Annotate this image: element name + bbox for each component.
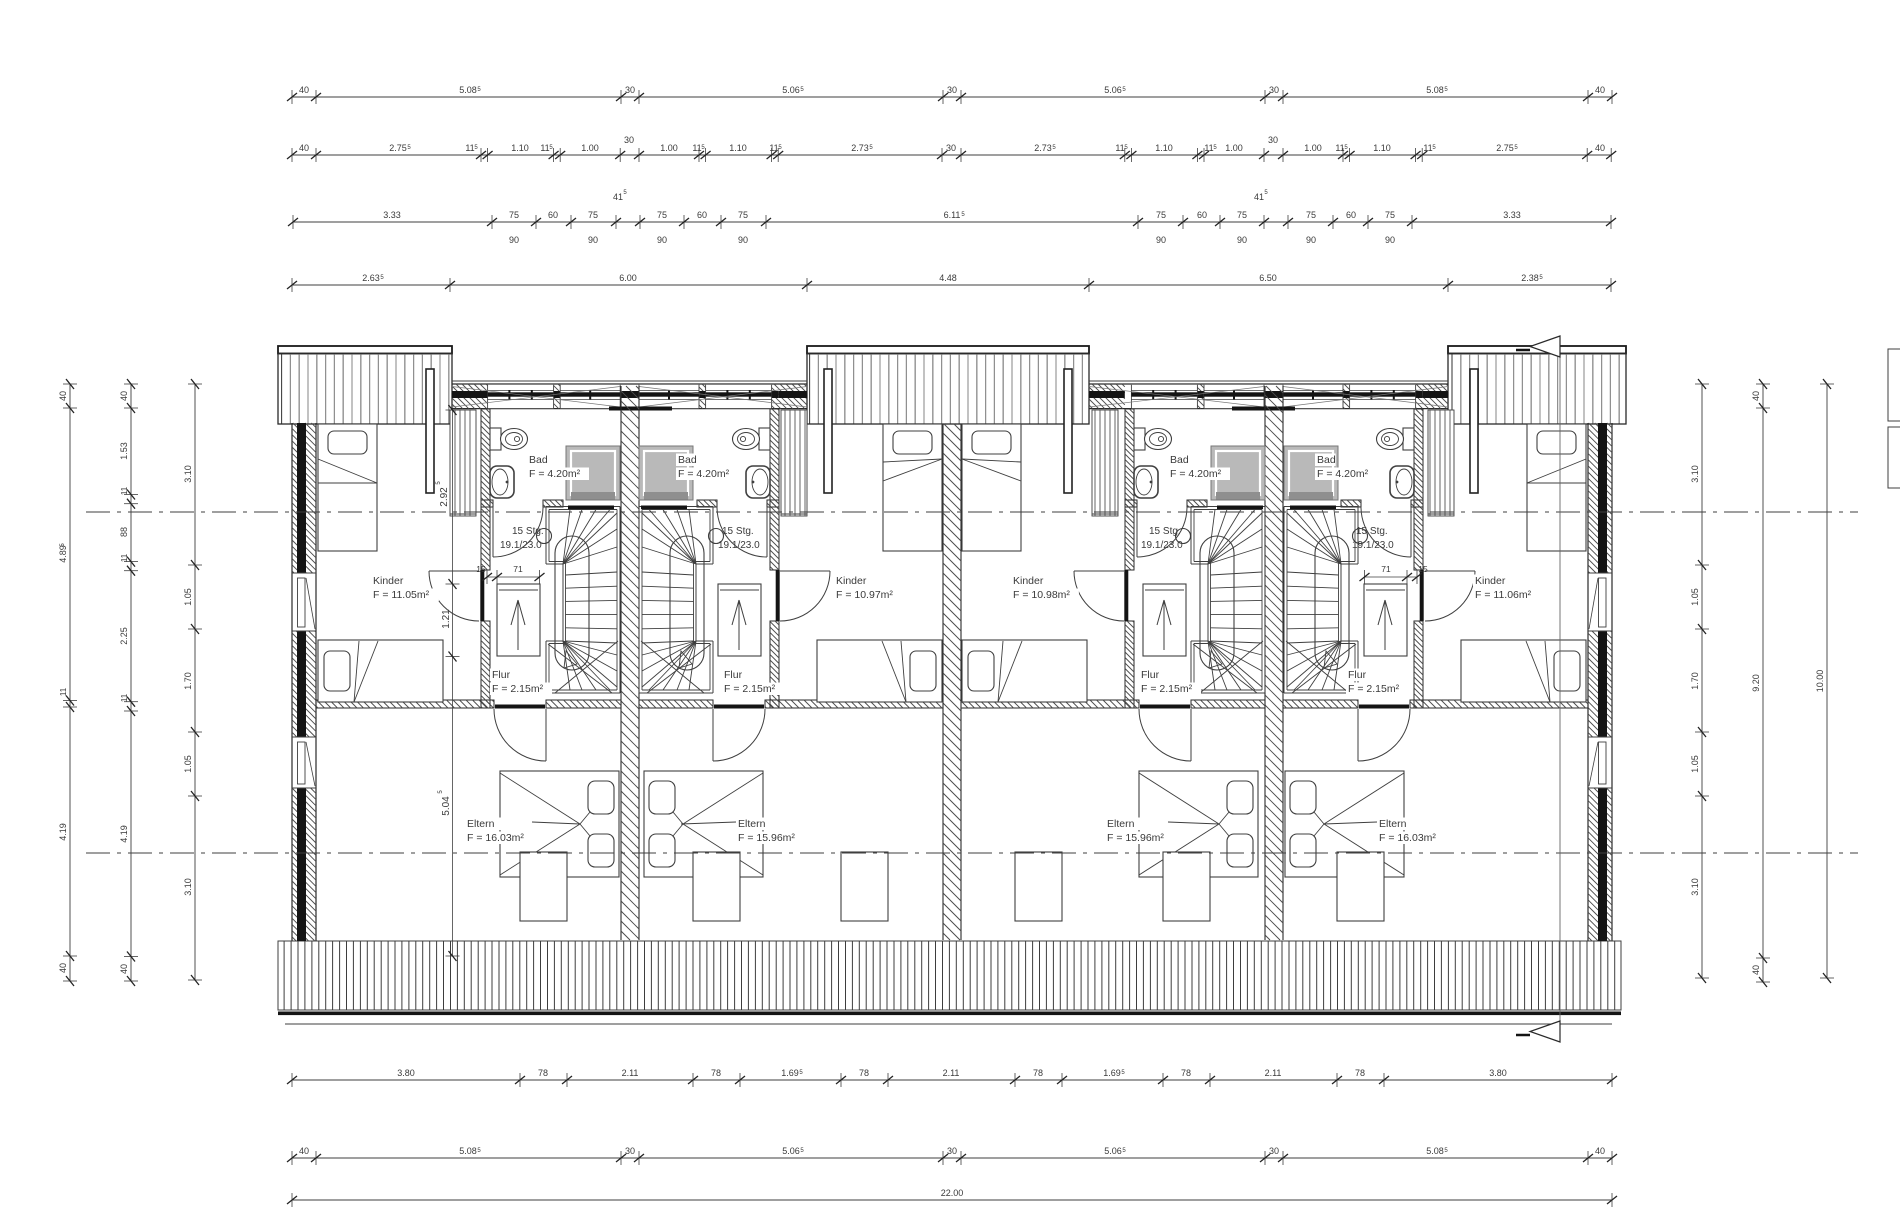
svg-text:11: 11 [465, 143, 474, 153]
svg-text:4.19: 4.19 [58, 823, 68, 841]
svg-text:4.89: 4.89 [58, 545, 68, 563]
svg-text:F = 4.20m²: F = 4.20m² [529, 468, 581, 480]
svg-text:1.70: 1.70 [183, 672, 193, 690]
svg-text:Eltern: Eltern [738, 818, 766, 830]
svg-text:90: 90 [1306, 235, 1316, 245]
svg-text:F = 11.05m²: F = 11.05m² [373, 589, 430, 601]
svg-text:1.70: 1.70 [1690, 672, 1700, 690]
svg-text:F = 2.15m²: F = 2.15m² [1141, 683, 1193, 695]
svg-text:1.05: 1.05 [183, 755, 193, 773]
svg-text:6.11: 6.11 [944, 210, 961, 220]
svg-text:1.05: 1.05 [183, 588, 193, 606]
svg-text:F = 16.03m²: F = 16.03m² [1379, 832, 1436, 844]
svg-text:78: 78 [859, 1068, 869, 1078]
svg-text:19.1/23.0: 19.1/23.0 [1352, 540, 1394, 551]
svg-text:30: 30 [947, 85, 957, 95]
svg-text:Bad: Bad [678, 454, 697, 466]
svg-text:90: 90 [588, 235, 598, 245]
svg-text:F = 2.15m²: F = 2.15m² [1348, 683, 1400, 695]
svg-text:30: 30 [625, 85, 635, 95]
svg-text:30: 30 [1269, 85, 1279, 95]
svg-text:Flur: Flur [1141, 669, 1160, 681]
svg-text:1.00: 1.00 [581, 143, 599, 153]
svg-text:1.21: 1.21 [441, 609, 452, 629]
svg-text:78: 78 [1181, 1068, 1191, 1078]
svg-text:11: 11 [692, 143, 701, 153]
svg-text:5.08: 5.08 [459, 85, 477, 95]
svg-text:5.06: 5.06 [1104, 85, 1122, 95]
svg-text:2.92: 2.92 [439, 487, 450, 507]
svg-text:Kinder: Kinder [836, 575, 867, 587]
svg-text:40: 40 [1751, 965, 1761, 975]
svg-text:1.00: 1.00 [660, 143, 678, 153]
svg-text:40: 40 [58, 963, 68, 973]
svg-text:75: 75 [1385, 210, 1395, 220]
svg-text:3.33: 3.33 [1503, 210, 1521, 220]
svg-text:5.06: 5.06 [782, 1146, 800, 1156]
svg-text:60: 60 [548, 210, 558, 220]
svg-text:78: 78 [1355, 1068, 1365, 1078]
svg-text:F = 15.96m²: F = 15.96m² [1107, 832, 1164, 844]
svg-text:2.11: 2.11 [1265, 1068, 1282, 1078]
svg-text:2.11: 2.11 [622, 1068, 639, 1078]
svg-text:2.75: 2.75 [1496, 143, 1514, 153]
svg-text:10.00: 10.00 [1815, 670, 1825, 693]
svg-text:90: 90 [1156, 235, 1166, 245]
svg-text:15 Stg.: 15 Stg. [512, 526, 544, 537]
svg-text:1.10: 1.10 [1155, 143, 1173, 153]
svg-text:1.10: 1.10 [1373, 143, 1391, 153]
svg-text:15 Stg.: 15 Stg. [1356, 526, 1388, 537]
svg-text:40: 40 [299, 85, 309, 95]
svg-text:11: 11 [120, 553, 129, 562]
svg-text:2.75: 2.75 [389, 143, 407, 153]
svg-text:75: 75 [588, 210, 598, 220]
svg-text:Eltern: Eltern [467, 818, 495, 830]
svg-text:3.10: 3.10 [1690, 465, 1700, 483]
svg-text:Eltern: Eltern [1379, 818, 1407, 830]
svg-text:78: 78 [711, 1068, 721, 1078]
svg-text:60: 60 [1197, 210, 1207, 220]
svg-text:F = 2.15m²: F = 2.15m² [724, 683, 776, 695]
svg-text:5.04: 5.04 [441, 796, 452, 816]
svg-text:78: 78 [538, 1068, 548, 1078]
svg-text:11: 11 [1335, 143, 1344, 153]
svg-text:19.1/23.0: 19.1/23.0 [718, 540, 760, 551]
svg-text:78: 78 [1033, 1068, 1043, 1078]
svg-text:1.69: 1.69 [1103, 1068, 1121, 1078]
svg-text:3.10: 3.10 [1690, 878, 1700, 896]
svg-text:30: 30 [1268, 135, 1278, 145]
svg-text:2.63: 2.63 [362, 273, 380, 283]
svg-text:Kinder: Kinder [1475, 575, 1506, 587]
svg-text:4.48: 4.48 [939, 273, 957, 283]
svg-text:1.05: 1.05 [1690, 588, 1700, 606]
svg-text:Flur: Flur [1348, 669, 1367, 681]
svg-text:90: 90 [509, 235, 519, 245]
svg-text:40: 40 [299, 1146, 309, 1156]
svg-text:Kinder: Kinder [373, 575, 404, 587]
svg-text:40: 40 [119, 964, 129, 974]
svg-text:11: 11 [1204, 143, 1213, 153]
svg-text:75: 75 [1306, 210, 1316, 220]
svg-text:90: 90 [738, 235, 748, 245]
svg-text:40: 40 [1595, 1146, 1605, 1156]
svg-text:3.80: 3.80 [1489, 1068, 1507, 1078]
svg-text:Bad: Bad [1170, 454, 1189, 466]
svg-text:15: 15 [476, 564, 486, 574]
svg-text:40: 40 [1751, 391, 1761, 401]
svg-text:Bad: Bad [529, 454, 548, 466]
svg-text:F = 2.15m²: F = 2.15m² [492, 683, 544, 695]
svg-text:5.08: 5.08 [1426, 85, 1444, 95]
svg-text:40: 40 [1595, 143, 1605, 153]
svg-text:11: 11 [1115, 143, 1124, 153]
svg-text:F = 10.98m²: F = 10.98m² [1013, 589, 1070, 601]
svg-text:30: 30 [624, 135, 634, 145]
svg-text:Kinder: Kinder [1013, 575, 1044, 587]
svg-text:75: 75 [657, 210, 667, 220]
svg-text:11: 11 [1423, 143, 1432, 153]
svg-text:1.05: 1.05 [1690, 755, 1700, 773]
svg-text:11: 11 [120, 486, 129, 495]
svg-text:22.00: 22.00 [941, 1188, 964, 1198]
svg-text:75: 75 [1156, 210, 1166, 220]
svg-text:11: 11 [59, 687, 68, 696]
svg-text:40: 40 [119, 391, 129, 401]
svg-text:1.69: 1.69 [781, 1068, 799, 1078]
svg-text:30: 30 [947, 1146, 957, 1156]
svg-text:19.1/23.0: 19.1/23.0 [1141, 540, 1183, 551]
svg-text:Eltern: Eltern [1107, 818, 1135, 830]
svg-text:41: 41 [1254, 192, 1264, 202]
svg-text:2.73: 2.73 [851, 143, 869, 153]
svg-text:Flur: Flur [724, 669, 743, 681]
svg-text:40: 40 [299, 143, 309, 153]
svg-text:F = 4.20m²: F = 4.20m² [1170, 468, 1222, 480]
svg-text:1.53: 1.53 [119, 442, 129, 460]
svg-text:5.06: 5.06 [1104, 1146, 1122, 1156]
svg-text:11: 11 [540, 143, 549, 153]
svg-text:1.10: 1.10 [511, 143, 529, 153]
svg-text:1.00: 1.00 [1225, 143, 1243, 153]
svg-text:19.1/23.0: 19.1/23.0 [500, 540, 542, 551]
svg-text:30: 30 [625, 1146, 635, 1156]
svg-text:F = 11.06m²: F = 11.06m² [1475, 589, 1532, 601]
svg-text:15 Stg.: 15 Stg. [722, 526, 754, 537]
svg-text:F = 16.03m²: F = 16.03m² [467, 832, 524, 844]
svg-text:6.50: 6.50 [1259, 273, 1277, 283]
svg-text:F = 15.96m²: F = 15.96m² [738, 832, 795, 844]
svg-text:71: 71 [513, 564, 523, 574]
svg-text:2.73: 2.73 [1034, 143, 1052, 153]
svg-text:6.00: 6.00 [619, 273, 637, 283]
svg-text:1.10: 1.10 [729, 143, 747, 153]
svg-text:40: 40 [58, 391, 68, 401]
svg-text:15: 15 [1418, 564, 1428, 574]
svg-text:3.10: 3.10 [183, 465, 193, 483]
svg-text:71: 71 [1381, 564, 1391, 574]
svg-text:60: 60 [697, 210, 707, 220]
svg-text:2.25: 2.25 [119, 627, 129, 645]
svg-text:30: 30 [946, 143, 956, 153]
svg-text:75: 75 [738, 210, 748, 220]
svg-text:41: 41 [613, 192, 623, 202]
svg-text:Bad: Bad [1317, 454, 1336, 466]
svg-text:5.08: 5.08 [459, 1146, 477, 1156]
svg-text:2.38: 2.38 [1521, 273, 1539, 283]
svg-text:3.80: 3.80 [397, 1068, 415, 1078]
svg-text:5.08: 5.08 [1426, 1146, 1444, 1156]
svg-text:Flur: Flur [492, 669, 511, 681]
svg-text:4.19: 4.19 [119, 825, 129, 843]
svg-text:30: 30 [1269, 1146, 1279, 1156]
svg-text:11: 11 [769, 143, 778, 153]
svg-text:75: 75 [509, 210, 519, 220]
svg-text:2.11: 2.11 [943, 1068, 960, 1078]
svg-text:90: 90 [1237, 235, 1247, 245]
svg-text:90: 90 [1385, 235, 1395, 245]
svg-text:60: 60 [1346, 210, 1356, 220]
svg-text:F = 10.97m²: F = 10.97m² [836, 589, 893, 601]
svg-text:F = 4.20m²: F = 4.20m² [678, 468, 730, 480]
svg-text:40: 40 [1595, 85, 1605, 95]
svg-text:3.33: 3.33 [383, 210, 401, 220]
svg-text:88: 88 [119, 527, 129, 537]
svg-text:F = 4.20m²: F = 4.20m² [1317, 468, 1369, 480]
svg-text:90: 90 [657, 235, 667, 245]
svg-text:9.20: 9.20 [1751, 674, 1761, 692]
svg-text:11: 11 [120, 693, 129, 702]
svg-text:3.10: 3.10 [183, 878, 193, 896]
svg-text:5.06: 5.06 [782, 85, 800, 95]
svg-text:75: 75 [1237, 210, 1247, 220]
svg-text:1.00: 1.00 [1304, 143, 1322, 153]
